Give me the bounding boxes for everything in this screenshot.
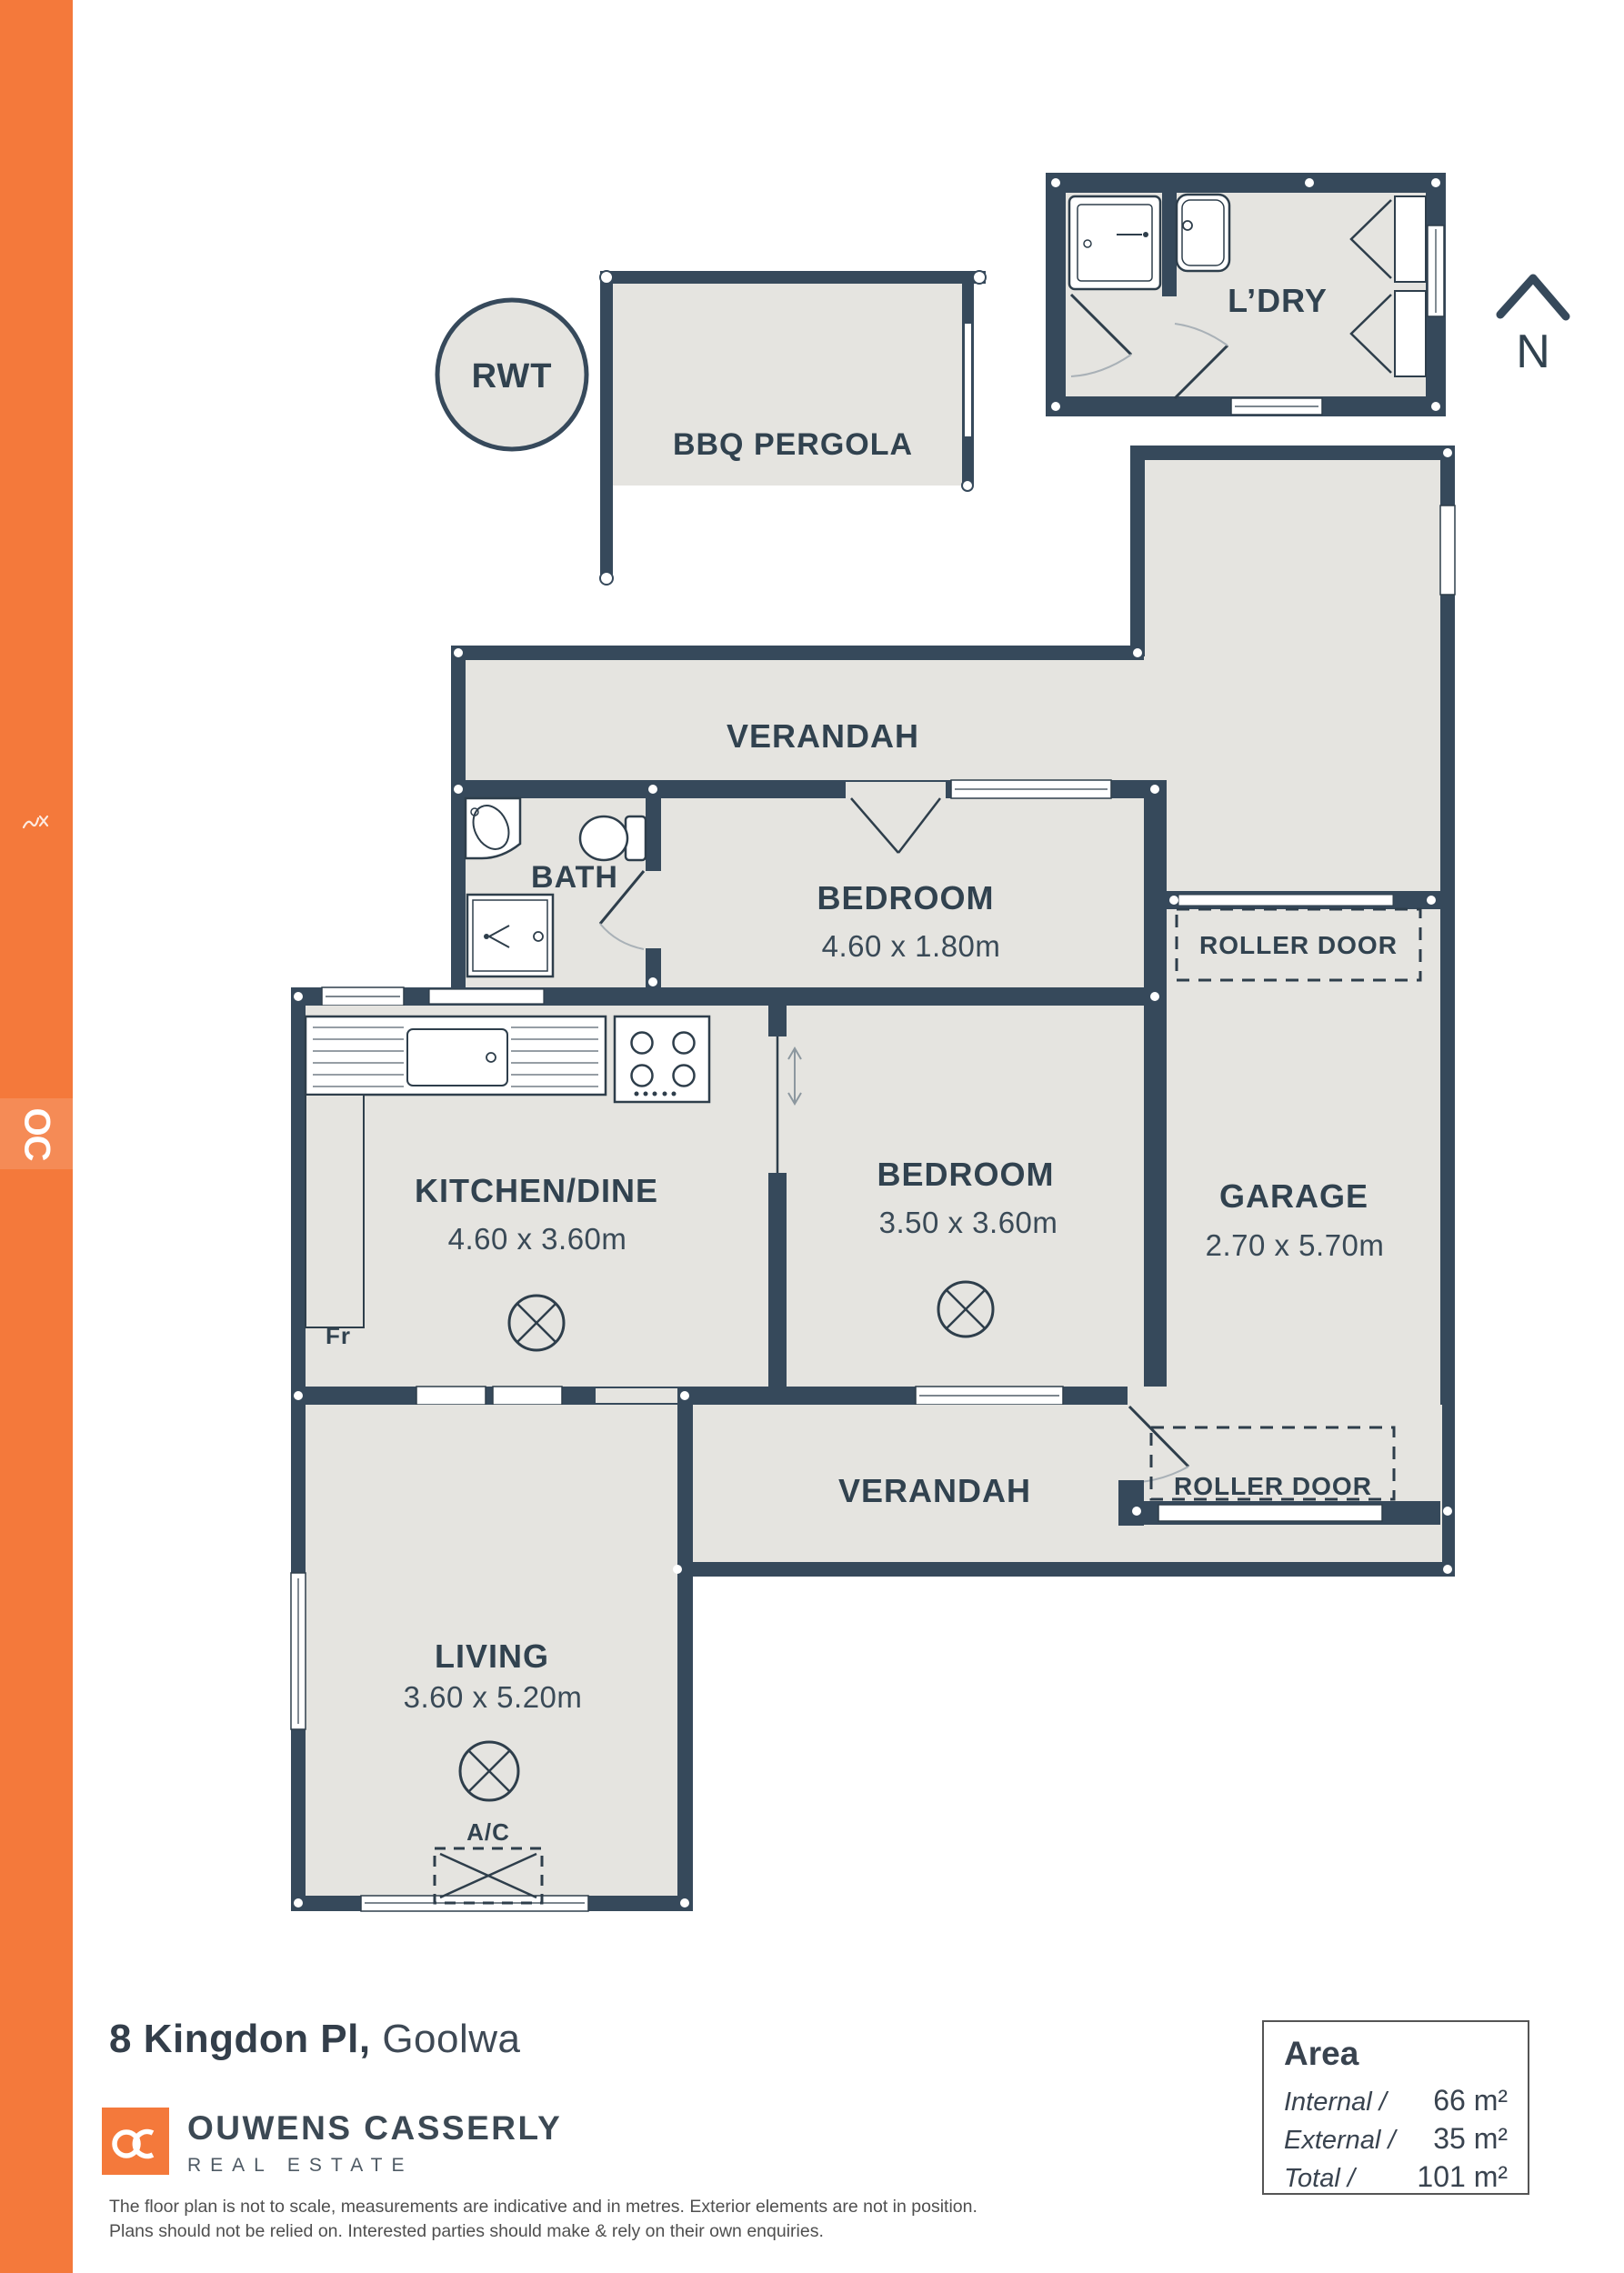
ac-label: A/C: [466, 1818, 510, 1846]
bedroom1-dims: 4.60 x 1.80m: [822, 929, 1001, 963]
floorplan-page: OC: [0, 0, 1624, 2273]
bbq-pergola: BBQ PERGOLA: [600, 271, 986, 585]
property-address: 8 Kingdon Pl, Goolwa: [109, 2017, 521, 2062]
area-panel-title: Area: [1284, 2035, 1508, 2073]
area-row-total: Total / 101 m²: [1284, 2160, 1508, 2194]
bath-shower-icon: [467, 895, 553, 976]
living-label: LIVING: [435, 1637, 549, 1675]
bath-label: BATH: [531, 860, 618, 895]
roller-door-bottom-label: ROLLER DOOR: [1174, 1472, 1372, 1500]
kitchen-label: KITCHEN/DINE: [415, 1172, 658, 1209]
kitchen-dims: 4.60 x 3.60m: [448, 1222, 627, 1256]
disclaimer-text: The floor plan is not to scale, measurem…: [109, 2195, 977, 2244]
verandah-bottom: VERANDAH ROLLER DOOR: [671, 1405, 1446, 1577]
laundry-label: L’DRY: [1228, 282, 1328, 319]
agency-brand: OUWENS CASSERLY REAL ESTATE: [187, 2109, 562, 2177]
living-room: LIVING 3.60 x 5.20m A/C: [291, 1405, 693, 1911]
area-row-internal: Internal / 66 m²: [1284, 2084, 1508, 2118]
rwt-label: RWT: [472, 357, 553, 396]
verandah-bottom-label: VERANDAH: [838, 1472, 1031, 1509]
agency-name: OUWENS CASSERLY: [187, 2109, 562, 2148]
address-suburb: Goolwa: [371, 2017, 521, 2061]
laundry-trough-icon: [1177, 195, 1229, 271]
laundry-room: L’DRY: [1046, 173, 1446, 416]
north-chevron-icon: [1500, 278, 1566, 316]
rwt-tank: RWT: [437, 300, 586, 449]
north-label: N: [1516, 325, 1550, 378]
oc-logo-icon: [102, 2108, 169, 2175]
disclaimer-line1: The floor plan is not to scale, measurem…: [109, 2195, 977, 2219]
garage-label: GARAGE: [1219, 1177, 1368, 1215]
verandah-top-label: VERANDAH: [727, 717, 919, 755]
area-internal-value: 66 m²: [1433, 2084, 1508, 2118]
bedroom2-dims: 3.50 x 3.60m: [879, 1206, 1058, 1239]
roller-door-opening: [1158, 1505, 1382, 1521]
bedroom2-label: BEDROOM: [877, 1156, 1055, 1193]
kitchen-sink-bench-icon: [306, 1016, 606, 1095]
kitchen-bench-return: [306, 1095, 364, 1327]
address-street: 8 Kingdon Pl,: [109, 2017, 371, 2061]
area-row-external: External / 35 m²: [1284, 2122, 1508, 2156]
bedroom2-fan-icon: [938, 1282, 993, 1337]
bedroom1-label: BEDROOM: [817, 879, 995, 916]
mid-wall-opening: [429, 989, 544, 1004]
bbq-pergola-label: BBQ PERGOLA: [673, 427, 913, 462]
area-total-value: 101 m²: [1417, 2160, 1508, 2194]
fridge-label: Fr: [326, 1322, 351, 1349]
north-indicator: N: [1500, 278, 1566, 378]
disclaimer-line2: Plans should not be relied on. Intereste…: [109, 2219, 977, 2244]
laundry-shower-icon: [1069, 196, 1160, 289]
area-internal-label: Internal /: [1284, 2088, 1387, 2118]
agency-logo: [102, 2108, 169, 2175]
area-external-label: External /: [1284, 2126, 1396, 2156]
kitchen-bottom-window: [493, 1387, 562, 1405]
kitchen-bottom-window: [416, 1387, 486, 1405]
pergola-window: [1440, 506, 1455, 595]
area-summary-panel: Area Internal / 66 m² External / 35 m² T…: [1262, 2020, 1529, 2195]
living-fan-icon: [460, 1742, 518, 1800]
mid-wall: [291, 987, 1167, 1006]
bath-bedroom1-section: BATH BEDROOM 4.60 x 1.80m: [451, 780, 1167, 987]
bath-vanity-icon: [466, 798, 520, 858]
floor-plan: L’DRY N RWT: [0, 0, 1624, 1964]
area-external-value: 35 m²: [1433, 2122, 1508, 2156]
toilet-icon: [580, 816, 646, 860]
stove-icon: [615, 1016, 709, 1102]
living-dims: 3.60 x 5.20m: [404, 1680, 583, 1714]
agency-tagline: REAL ESTATE: [187, 2155, 562, 2177]
roller-door-top-label: ROLLER DOOR: [1199, 931, 1398, 959]
garage-dims: 2.70 x 5.70m: [1206, 1228, 1385, 1262]
kitchen-fan-icon: [509, 1296, 564, 1350]
garage-top-window: [1178, 895, 1393, 906]
area-total-label: Total /: [1284, 2164, 1355, 2194]
